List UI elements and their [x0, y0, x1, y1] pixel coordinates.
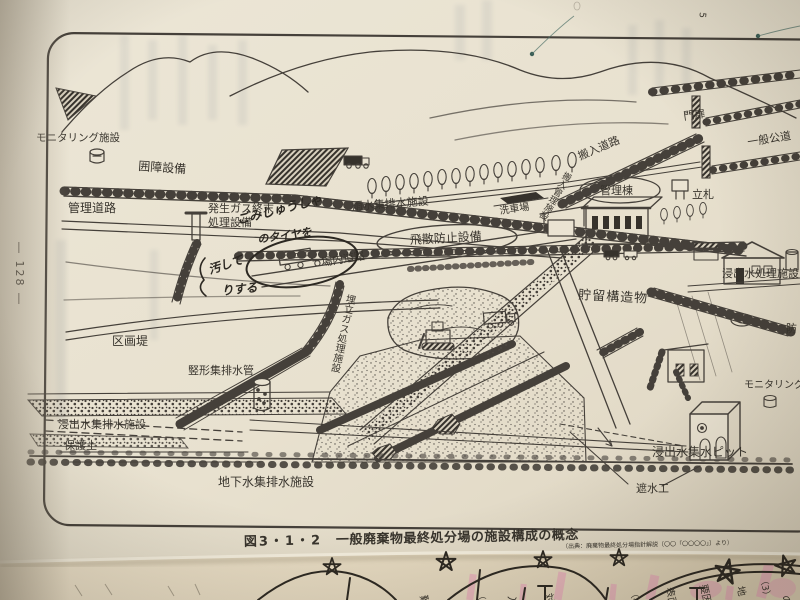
book-photo: モニタリング施設 囲障設備 管理道路 発生ガス終末 処理設備 雨水集排水施設 洗…	[0, 0, 800, 600]
photo-vignette	[0, 0, 800, 600]
photo-canvas: モニタリング施設 囲障設備 管理道路 発生ガス終末 処理設備 雨水集排水施設 洗…	[0, 0, 800, 600]
